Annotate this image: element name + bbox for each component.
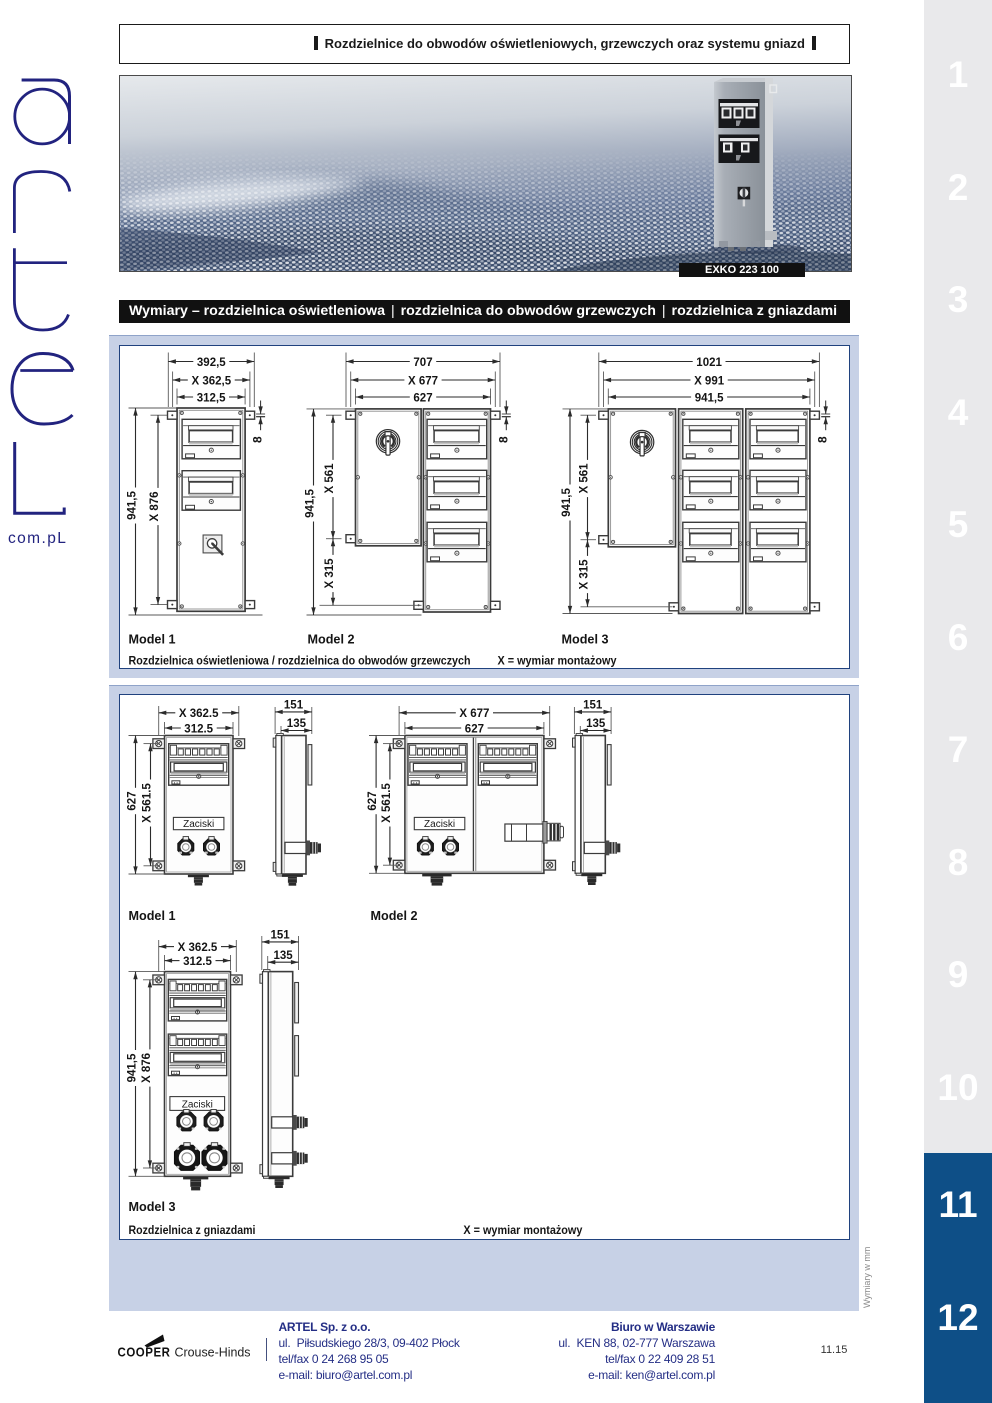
svg-text:8: 8 — [496, 436, 510, 443]
svg-text:Model 2: Model 2 — [307, 632, 354, 646]
svg-text:X 561: X 561 — [578, 462, 590, 493]
svg-text:Rozdzielnica z gniazdami: Rozdzielnica z gniazdami — [128, 1223, 255, 1237]
svg-text:8: 8 — [250, 436, 264, 443]
svg-text:X 362.5: X 362.5 — [178, 708, 218, 720]
svg-text:Model 1: Model 1 — [128, 632, 175, 646]
svg-text:X 991: X 991 — [694, 375, 725, 387]
svg-text:627: 627 — [464, 723, 483, 735]
svg-text:707: 707 — [413, 356, 432, 368]
svg-text:135: 135 — [586, 718, 606, 730]
svg-text:1021: 1021 — [696, 356, 722, 368]
svg-text:X = wymiar montażowy: X = wymiar montażowy — [463, 1223, 582, 1237]
svg-text:X = wymiar montażowy: X = wymiar montażowy — [497, 653, 616, 667]
svg-text:Zaciski: Zaciski — [183, 819, 214, 830]
svg-text:X 362,5: X 362,5 — [191, 375, 231, 387]
svg-text:X 876: X 876 — [149, 491, 161, 521]
svg-text:Model 3: Model 3 — [128, 1200, 175, 1214]
svg-text:312,5: 312,5 — [196, 392, 225, 404]
svg-text:Zaciski: Zaciski — [424, 819, 455, 830]
svg-text:X 315: X 315 — [578, 558, 590, 589]
svg-text:135: 135 — [273, 950, 293, 962]
svg-text:941,5: 941,5 — [561, 487, 573, 516]
svg-text:X 561.5: X 561.5 — [141, 783, 153, 823]
svg-text:X 362.5: X 362.5 — [177, 942, 217, 954]
svg-text:X 677: X 677 — [459, 708, 489, 720]
svg-text:941,5: 941,5 — [304, 488, 316, 517]
svg-text:X 677: X 677 — [407, 375, 437, 387]
svg-text:627: 627 — [367, 791, 379, 810]
svg-text:312.5: 312.5 — [184, 723, 213, 735]
svg-text:392,5: 392,5 — [196, 356, 225, 368]
svg-text:X 876: X 876 — [140, 1053, 152, 1083]
svg-text:312.5: 312.5 — [183, 956, 212, 968]
svg-text:8: 8 — [815, 436, 829, 443]
svg-text:151: 151 — [283, 700, 303, 712]
svg-text:135: 135 — [286, 718, 306, 730]
svg-text:X 561: X 561 — [324, 462, 336, 493]
svg-text:941,5: 941,5 — [126, 1053, 138, 1082]
svg-text:151: 151 — [270, 930, 290, 942]
svg-text:Zaciski: Zaciski — [181, 1100, 212, 1111]
svg-text:Model 2: Model 2 — [370, 909, 417, 923]
svg-text:COOPER: COOPER — [118, 1346, 171, 1360]
svg-text:Rozdzielnica oświetleniowa / r: Rozdzielnica oświetleniowa / rozdzielnic… — [128, 653, 470, 667]
svg-text:X 561.5: X 561.5 — [380, 783, 392, 823]
svg-text:com.pL: com.pL — [8, 530, 67, 547]
svg-text:Model 1: Model 1 — [128, 909, 175, 923]
svg-text:Model 3: Model 3 — [561, 632, 608, 646]
svg-text:151: 151 — [583, 700, 603, 712]
svg-text:941,5: 941,5 — [126, 490, 138, 519]
svg-text:627: 627 — [413, 392, 432, 404]
svg-text:Crouse-Hinds: Crouse-Hinds — [175, 1346, 251, 1360]
svg-text:X 315: X 315 — [324, 557, 336, 588]
svg-text:941,5: 941,5 — [694, 392, 723, 404]
svg-text:627: 627 — [126, 791, 138, 810]
